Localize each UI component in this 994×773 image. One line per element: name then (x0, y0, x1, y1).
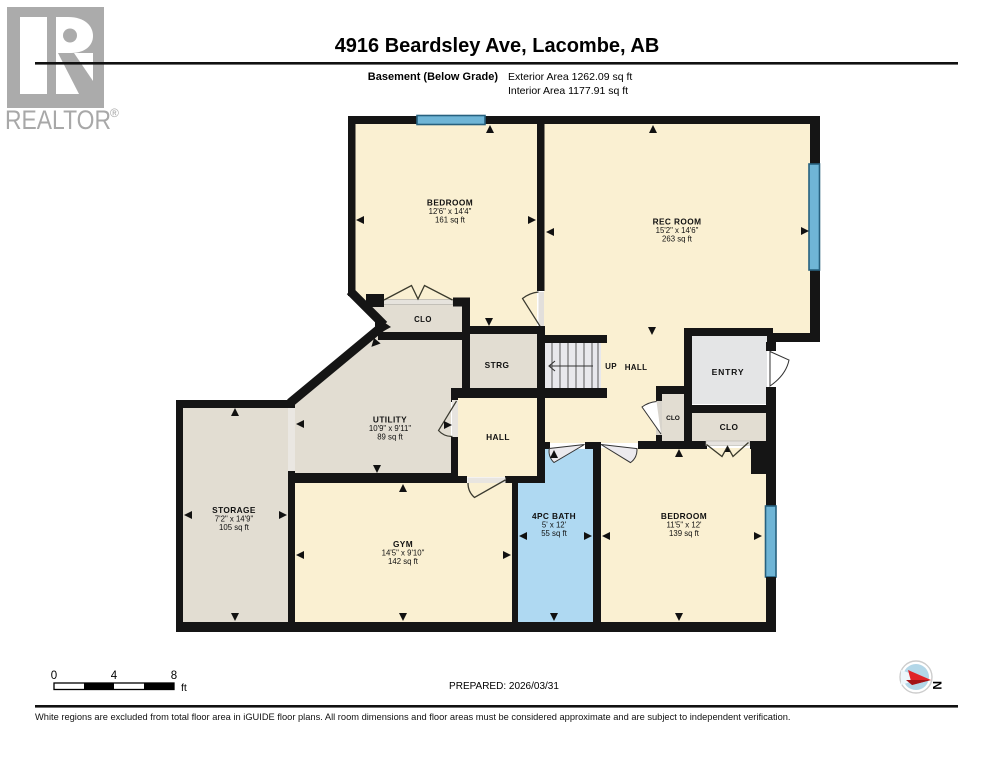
svg-text:4916 Beardsley Ave, Lacombe, A: 4916 Beardsley Ave, Lacombe, AB (335, 35, 660, 57)
svg-text:89 sq ft: 89 sq ft (377, 433, 403, 442)
svg-text:105 sq ft: 105 sq ft (219, 523, 250, 532)
svg-text:BEDROOM: BEDROOM (427, 198, 473, 208)
svg-text:REC ROOM: REC ROOM (653, 217, 702, 227)
svg-text:139 sq ft: 139 sq ft (669, 529, 700, 538)
svg-text:STRG: STRG (485, 360, 510, 370)
svg-text:®: ® (110, 106, 119, 120)
svg-text:PREPARED: 2026/03/31: PREPARED: 2026/03/31 (449, 681, 559, 692)
svg-text:Exterior Area 1262.09 sq ft: Exterior Area 1262.09 sq ft (508, 71, 632, 83)
svg-text:55 sq ft: 55 sq ft (541, 529, 567, 538)
svg-text:HALL: HALL (625, 363, 648, 372)
svg-text:CLO: CLO (666, 415, 680, 422)
svg-text:4PC BATH: 4PC BATH (532, 511, 576, 521)
svg-text:Basement (Below Grade): Basement (Below Grade) (368, 71, 499, 83)
svg-text:161 sq ft: 161 sq ft (435, 216, 466, 225)
svg-text:CLO: CLO (720, 422, 739, 432)
svg-text:HALL: HALL (486, 432, 510, 442)
svg-text:142 sq ft: 142 sq ft (388, 557, 419, 566)
svg-text:N: N (930, 681, 944, 690)
svg-text:STORAGE: STORAGE (212, 505, 256, 515)
svg-text:GYM: GYM (393, 539, 413, 549)
svg-text:0: 0 (51, 670, 57, 682)
svg-text:UP: UP (605, 362, 617, 371)
svg-text:White regions are excluded fro: White regions are excluded from total fl… (35, 712, 791, 722)
svg-text:UTILITY: UTILITY (373, 415, 407, 425)
svg-text:Interior Area 1177.91 sq ft: Interior Area 1177.91 sq ft (508, 85, 628, 97)
svg-text:CLO: CLO (414, 315, 432, 324)
svg-text:ENTRY: ENTRY (712, 367, 745, 377)
svg-text:REALTOR: REALTOR (5, 105, 111, 135)
svg-text:8: 8 (171, 670, 177, 682)
svg-text:BEDROOM: BEDROOM (661, 511, 707, 521)
svg-text:ft: ft (181, 682, 187, 694)
svg-text:263 sq ft: 263 sq ft (662, 235, 693, 244)
svg-text:4: 4 (111, 670, 118, 682)
